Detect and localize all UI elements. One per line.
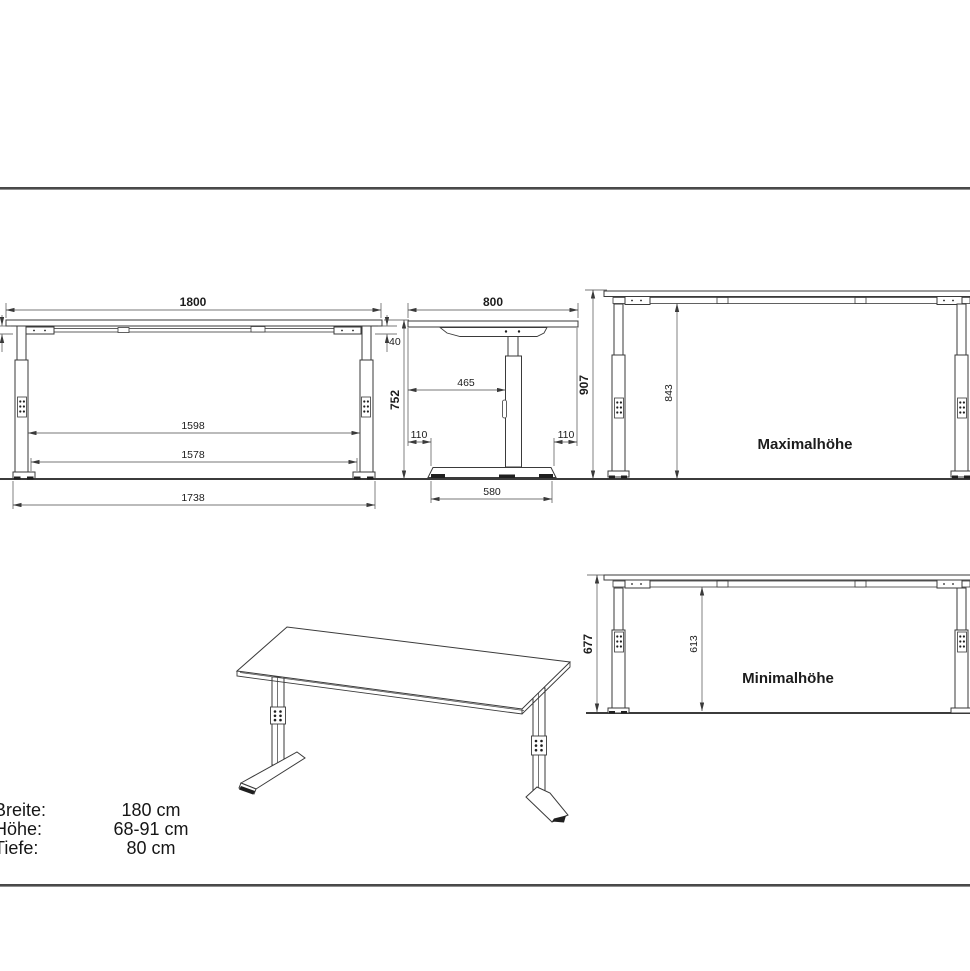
dimension-sheet: 1800 xyxy=(0,0,970,971)
max-right-leg xyxy=(951,304,970,479)
side-foot-rear-value: 110 xyxy=(558,429,575,441)
side-foot-length-value: 580 xyxy=(483,486,501,498)
front-tabletop xyxy=(6,320,382,326)
side-bracket xyxy=(440,328,547,337)
spec-row-hoehe: Höhe: 68-91 cm xyxy=(0,820,216,839)
min-left-control-box xyxy=(615,632,624,652)
spec-value-hoehe: 68-91 cm xyxy=(86,820,216,839)
side-foot-rear-dimension: 110 xyxy=(554,328,577,466)
max-tabletop xyxy=(604,291,970,297)
max-right-control-box xyxy=(958,398,967,418)
side-depth-value: 800 xyxy=(483,295,503,309)
front-clear-width-lower-value: 1578 xyxy=(181,449,205,461)
front-width-value: 1800 xyxy=(180,295,207,309)
min-clearance-dimension: 613 xyxy=(688,587,702,711)
min-view-label: Minimalhöhe xyxy=(742,670,834,687)
front-left-leg xyxy=(13,326,35,480)
spec-label-tiefe: Tiefe: xyxy=(0,839,86,858)
front-right-leg xyxy=(353,326,375,480)
side-tabletop xyxy=(408,321,578,327)
max-frame xyxy=(613,297,970,305)
min-height-drawing: 677 xyxy=(583,560,970,725)
min-tabletop xyxy=(604,575,970,580)
side-view-drawing: 800 465 110 xyxy=(400,290,590,515)
front-frame xyxy=(26,327,361,335)
max-left-control-box xyxy=(615,398,624,418)
max-total-height-value: 907 xyxy=(577,375,591,395)
front-left-control-box xyxy=(18,397,27,417)
perspective-view-drawing xyxy=(180,615,580,830)
max-clearance-value: 843 xyxy=(663,384,675,402)
side-foot-front-value: 110 xyxy=(411,429,428,441)
max-view-label: Maximalhöhe xyxy=(757,436,852,453)
spec-label-hoehe: Höhe: xyxy=(0,820,86,839)
side-foot-length-dimension: 580 xyxy=(431,481,552,503)
min-total-height-dimension: 677 xyxy=(581,575,609,712)
front-clear-width-upper-dimension: 1598 xyxy=(28,420,360,433)
spec-value-breite: 180 cm xyxy=(86,801,216,820)
min-right-leg xyxy=(951,588,970,713)
front-clear-width-upper-value: 1598 xyxy=(181,420,205,432)
side-column-latch xyxy=(503,400,507,418)
min-clearance-value: 613 xyxy=(688,635,700,653)
side-foot xyxy=(428,468,556,479)
side-top-to-column-value: 465 xyxy=(457,377,475,389)
bottom-divider-line xyxy=(0,884,970,887)
spec-list: Breite: 180 cm Höhe: 68-91 cm Tiefe: 80 … xyxy=(0,801,216,857)
spec-row-breite: Breite: 180 cm xyxy=(0,801,216,820)
front-view-drawing: 1800 xyxy=(0,290,412,515)
side-column xyxy=(503,337,522,468)
side-depth-dimension: 800 xyxy=(408,295,578,318)
front-clear-width-lower-dimension: 1578 xyxy=(31,449,357,471)
spec-label-breite: Breite: xyxy=(0,801,86,820)
min-right-control-box xyxy=(958,632,967,652)
spec-row-tiefe: Tiefe: 80 cm xyxy=(0,839,216,858)
front-foot-span-dimension: 1738 xyxy=(13,481,375,509)
min-left-leg xyxy=(608,588,629,714)
front-right-control-box xyxy=(362,397,371,417)
side-top-to-column-dimension: 465 xyxy=(408,328,506,394)
persp-right-leg xyxy=(526,688,568,823)
max-clearance-dimension: 843 xyxy=(663,304,677,480)
persp-tabletop xyxy=(237,627,570,714)
persp-right-control-box xyxy=(532,736,547,755)
front-foot-span-value: 1738 xyxy=(181,492,205,504)
persp-left-control-box xyxy=(271,707,286,724)
top-divider-line xyxy=(0,187,970,190)
max-left-leg xyxy=(608,304,629,479)
front-width-dimension: 1800 xyxy=(6,295,381,318)
max-height-drawing: 907 xyxy=(583,278,970,488)
persp-left-leg xyxy=(239,677,305,795)
min-total-height-value: 677 xyxy=(581,634,595,654)
spec-value-tiefe: 80 cm xyxy=(86,839,216,858)
side-foot-front-dimension: 110 xyxy=(408,394,431,466)
min-frame xyxy=(613,580,970,588)
